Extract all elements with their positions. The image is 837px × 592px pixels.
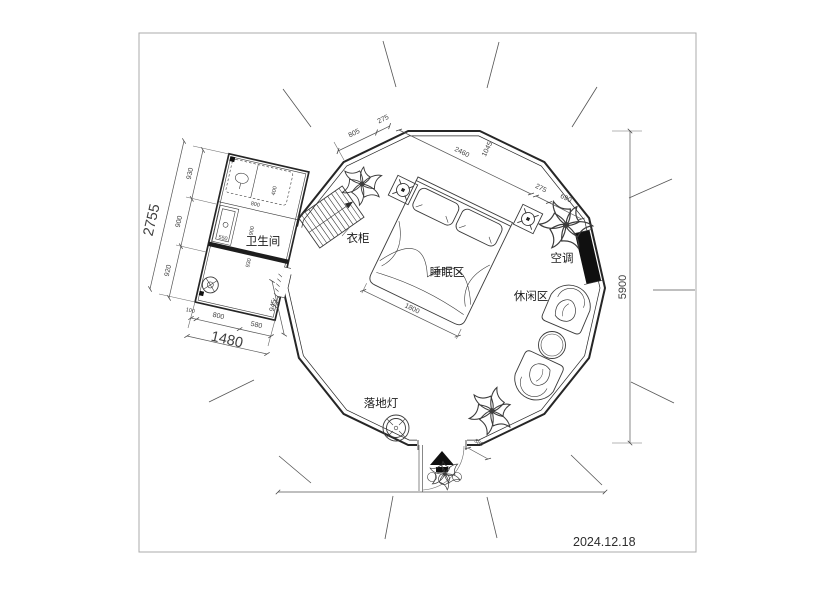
dim-bath-side-seg2: 900 [175, 215, 184, 228]
nightstand-left [388, 175, 417, 204]
plant [337, 163, 385, 210]
radial-line [279, 456, 311, 483]
dim-bath-front-seg3: 580 [250, 321, 263, 330]
label-leisure-area: 休闲区 [514, 289, 549, 303]
chair-top [541, 279, 597, 336]
label-wardrobe: 衣柜 [347, 231, 370, 245]
entry-arrow-icon [430, 451, 454, 472]
round-table [539, 332, 566, 359]
dim-entrance: 380 [468, 438, 488, 459]
dim-wall-top-b: 275 [377, 114, 391, 125]
dim-line-bed-width [363, 290, 458, 336]
radial-line [487, 42, 499, 88]
drawing-frame [139, 33, 696, 552]
entry-plants [428, 461, 462, 489]
dim-bed-head-offset: 1045 [481, 141, 494, 158]
radial-line [283, 89, 311, 127]
radial-line [487, 497, 497, 538]
floor-plan-page: 800 400 550 900 930 卫生间 衣柜 [0, 0, 837, 592]
dim-bed-width: 1800 [403, 302, 420, 315]
dim-bath-front-seg2: 800 [212, 312, 225, 321]
radial-line [209, 380, 254, 402]
floor-plan-canvas: 800 400 550 900 930 卫生间 衣柜 [0, 0, 837, 592]
dim-bath-side-total: 2755 [141, 203, 164, 238]
dim-bath-inner-a: 900 [248, 226, 256, 236]
dim-bath-front-seg1: 100 [185, 307, 195, 315]
dim-overall-height-group: 5900 [612, 131, 642, 443]
nightstand-right [513, 204, 542, 233]
dim-wall-right-a: 275 [534, 183, 548, 195]
round-table-inner [541, 334, 563, 356]
dim-bath-inner-b: 930 [245, 258, 253, 268]
dim-bath-inner-tray: 550 [218, 235, 228, 243]
room-wall-polygon [281, 131, 605, 451]
dim-chain-bed-run: 2460 1045 [399, 130, 531, 194]
dim-bath-inner-c: 800 [250, 201, 260, 209]
radial-line [383, 41, 396, 87]
bed: 1800 [362, 177, 513, 339]
dim-entrance-step: 380 [473, 438, 484, 448]
radial-line [571, 455, 602, 485]
dim-bath-side-seg1: 930 [186, 167, 195, 180]
date-stamp: 2024.12.18 [573, 535, 636, 549]
dim-wall-top-a: 805 [348, 128, 362, 139]
radial-line [572, 87, 597, 127]
radial-line [629, 179, 672, 198]
plant [465, 386, 515, 437]
label-air-conditioner: 空调 [551, 251, 574, 265]
floor-lamp-symbol [383, 415, 409, 441]
dim-bath-front-total: 1480 [209, 329, 244, 352]
dim-overall-height: 5900 [617, 275, 629, 299]
radial-line [631, 382, 674, 403]
dim-bath-inner-d: 400 [271, 186, 279, 196]
label-floor-lamp: 落地灯 [364, 397, 399, 410]
label-sleeping-area: 睡眠区 [430, 266, 465, 279]
dim-bath-side-seg3: 920 [164, 264, 173, 277]
label-bathroom: 卫生间 [246, 234, 281, 248]
radial-line [385, 496, 393, 539]
